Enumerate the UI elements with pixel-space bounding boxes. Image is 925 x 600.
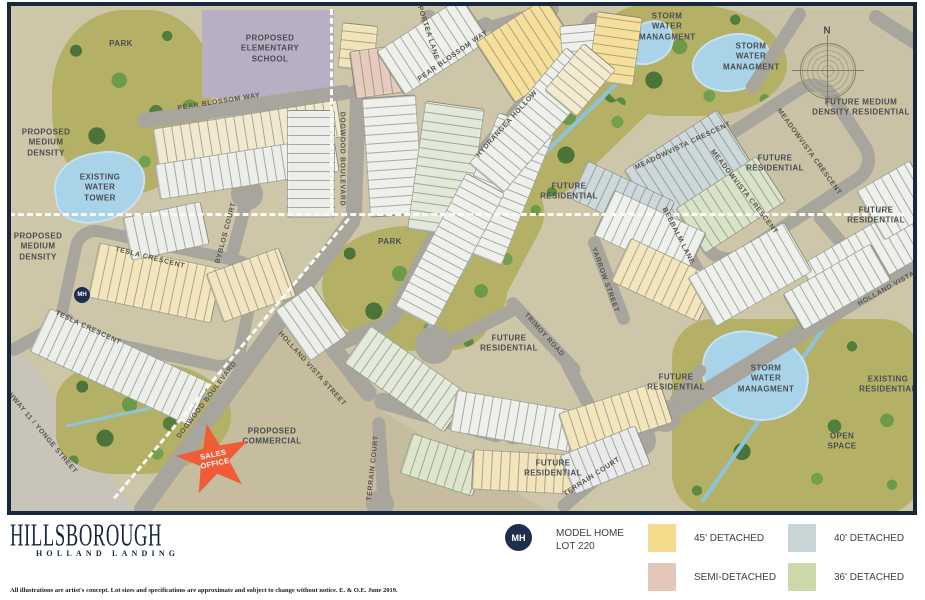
legend-swatch-45-detached xyxy=(648,524,676,552)
region-label-future-residential: FUTURE RESIDENTIAL xyxy=(538,182,600,203)
region-label-park: PARK xyxy=(370,237,410,247)
street-label-dogwood-boulevard: DOGWOOD BOULEVARD xyxy=(339,112,346,206)
legend-label-36-detached: 36' DETACHED xyxy=(834,571,904,584)
site-plan-page: N PEAR BLOSSOM WAY PEAR BLOSSOM WAY PORT… xyxy=(0,0,925,600)
legend-model-home-line2: LOT 220 xyxy=(556,540,624,553)
legend-model-home-marker: MH xyxy=(505,524,532,551)
legend-model-home-label: MODEL HOME LOT 220 xyxy=(556,527,624,553)
region-label-storm-water-management: STORM WATER MANAGMENT xyxy=(735,363,797,394)
compass-axis xyxy=(792,70,864,71)
region-label-proposed-elementary-school: PROPOSED ELEMENTARY SCHOOL xyxy=(230,33,310,64)
region-label-future-residential: FUTURE RESIDENTIAL xyxy=(845,206,907,227)
legend-label-semi-detached: SEMI-DETACHED xyxy=(694,571,776,584)
logo-subtitle: HOLLAND LANDING xyxy=(36,549,179,558)
region-label-open-space: OPEN SPACE xyxy=(822,432,862,453)
legend-swatch-semi-detached xyxy=(648,563,676,591)
region-label-future-residential: FUTURE RESIDENTIAL xyxy=(645,373,707,394)
phase-boundary-line xyxy=(330,9,333,211)
model-home-marker: MH xyxy=(74,287,90,303)
legend-label-45-detached: 45' DETACHED xyxy=(694,532,764,545)
compass-north-label: N xyxy=(823,26,830,37)
cul-de-sac xyxy=(415,326,453,364)
region-label-existing-water-tower: EXISTING WATER TOWER xyxy=(75,172,125,203)
region-label-existing-residential: EXISTING RESIDENTIAL xyxy=(857,375,917,396)
site-plan-map: N PEAR BLOSSOM WAY PEAR BLOSSOM WAY PORT… xyxy=(7,2,917,515)
region-label-proposed-medium-density: PROPOSED MEDIUM DENSITY xyxy=(7,231,69,262)
legend-model-home-line1: MODEL HOME xyxy=(556,527,624,540)
legend-swatch-40-detached xyxy=(788,524,816,552)
region-label-park: PARK xyxy=(101,39,141,49)
compass-axis xyxy=(827,35,828,107)
region-label-storm-water-management: STORM WATER MANAGMENT xyxy=(639,11,695,42)
region-label-future-medium-density-residential: FUTURE MEDIUM DENSITY RESIDENTIAL xyxy=(809,98,914,119)
compass-rose xyxy=(800,43,856,99)
map-canvas: N PEAR BLOSSOM WAY PEAR BLOSSOM WAY PORT… xyxy=(7,4,917,515)
region-label-storm-water-management: STORM WATER MANAGMENT xyxy=(723,41,779,72)
region-label-future-residential: FUTURE RESIDENTIAL xyxy=(744,154,806,175)
region-label-future-residential: FUTURE RESIDENTIAL xyxy=(478,334,540,355)
region-label-future-residential: FUTURE RESIDENTIAL xyxy=(522,459,584,480)
legend-swatch-36-detached xyxy=(788,563,816,591)
region-label-proposed-medium-density: PROPOSED MEDIUM DENSITY xyxy=(15,127,77,158)
disclaimer-text: All illustrations are artist's concept. … xyxy=(10,587,398,594)
phase-boundary-line xyxy=(9,213,904,216)
lot-row xyxy=(287,110,335,218)
legend-label-40-detached: 40' DETACHED xyxy=(834,532,904,545)
